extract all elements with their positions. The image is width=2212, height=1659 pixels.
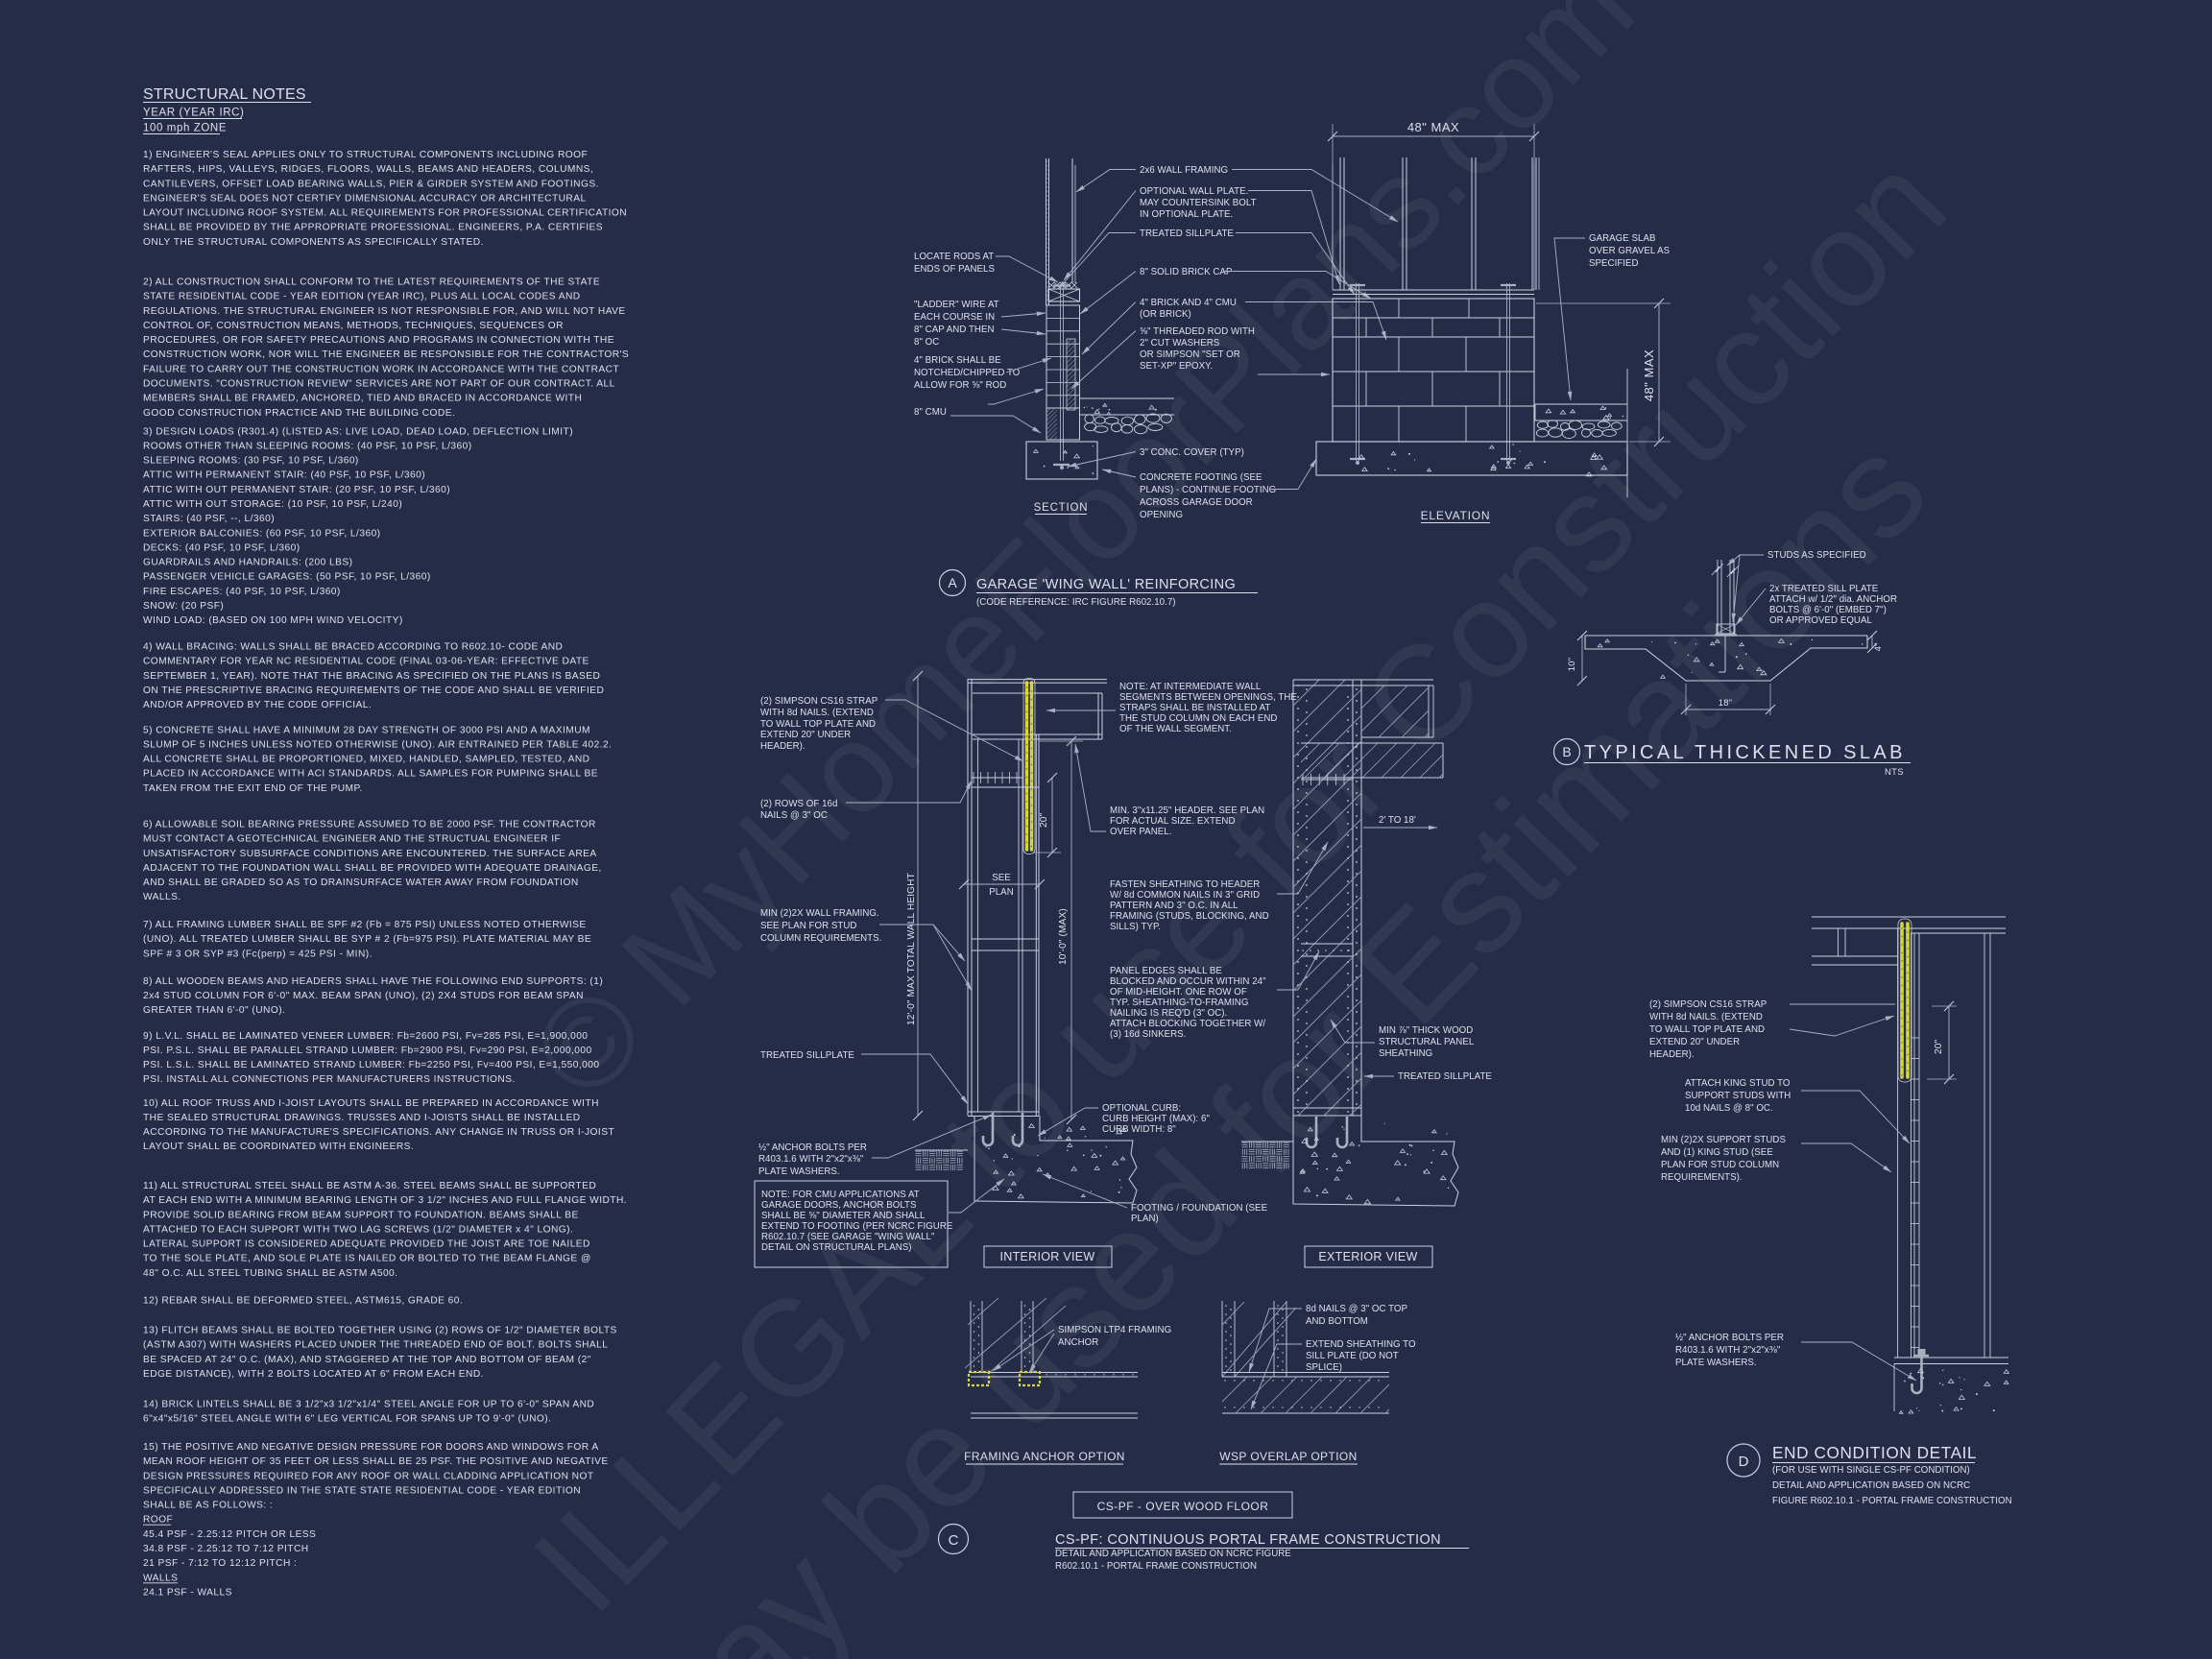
svg-text:STRUCTURAL PANEL: STRUCTURAL PANEL (1379, 1037, 1475, 1047)
svg-text:PASSENGER VEHICLE GARAGES: (50: PASSENGER VEHICLE GARAGES: (50 PSF, 10 P… (143, 572, 431, 583)
svg-text:R602.10.7 (SEE GARAGE "WING WA: R602.10.7 (SEE GARAGE "WING WALL" (761, 1232, 935, 1242)
svg-text:AND (1) KING STUD (SEE: AND (1) KING STUD (SEE (1661, 1147, 1773, 1158)
svg-text:DOCUMENTS. "CONSTRUCTION REVIE: DOCUMENTS. "CONSTRUCTION REVIEW" SERVICE… (143, 379, 615, 390)
svg-text:AND/OR APPROVED BY THE CODE OF: AND/OR APPROVED BY THE CODE OFFICIAL. (143, 700, 372, 710)
svg-text:½" ANCHOR BOLTS PER: ½" ANCHOR BOLTS PER (1675, 1333, 1784, 1343)
svg-text:STAIRS: (40 PSF, --, L/360): STAIRS: (40 PSF, --, L/360) (143, 514, 275, 524)
svg-text:10d NAILS @ 8" OC.: 10d NAILS @ 8" OC. (1685, 1103, 1773, 1114)
svg-text:THE STUD COLUMN ON EACH END: THE STUD COLUMN ON EACH END (1119, 713, 1277, 724)
svg-text:ALLOW FOR ⅝" ROD: ALLOW FOR ⅝" ROD (914, 380, 1006, 391)
svg-text:IN OPTIONAL PLATE.: IN OPTIONAL PLATE. (1140, 209, 1233, 220)
svg-text:48" MAX: 48" MAX (1407, 120, 1459, 134)
svg-text:12'-0" MAX TOTAL WALL HEIGHT: 12'-0" MAX TOTAL WALL HEIGHT (906, 873, 917, 1025)
svg-text:(2) SIMPSON CS16 STRAP: (2) SIMPSON CS16 STRAP (1649, 999, 1767, 1010)
svg-text:SNOW: (20 PSF): SNOW: (20 PSF) (143, 601, 224, 612)
svg-text:STATE RESIDENTIAL CODE - YEAR: STATE RESIDENTIAL CODE - YEAR EDITION (Y… (143, 292, 581, 302)
svg-text:DETAIL AND APPLICATION BASED O: DETAIL AND APPLICATION BASED ON NCRC (1772, 1480, 1970, 1491)
svg-text:NOTE: FOR CMU APPLICATIONS AT: NOTE: FOR CMU APPLICATIONS AT (761, 1190, 920, 1200)
svg-text:48" O.C. ALL STEEL TUBING SHAL: 48" O.C. ALL STEEL TUBING SHALL BE ASTM … (143, 1268, 397, 1279)
svg-text:18": 18" (1719, 698, 1733, 709)
svg-text:LATERAL SUPPORT IS CONSIDERED: LATERAL SUPPORT IS CONSIDERED ADEQUATE P… (143, 1239, 590, 1250)
svg-text:SLUMP OF 5 INCHES UNLESS NOTED: SLUMP OF 5 INCHES UNLESS NOTED OTHERWISE… (143, 739, 612, 750)
svg-text:CURB HEIGHT (MAX): 6": CURB HEIGHT (MAX): 6" (1102, 1114, 1210, 1124)
svg-text:TREATED SILLPLATE: TREATED SILLPLATE (1398, 1071, 1492, 1082)
svg-text:8" CMU: 8" CMU (914, 407, 947, 418)
svg-text:20": 20" (1039, 812, 1049, 828)
svg-text:DECKS: (40 PSF, 10 PSF, L/360): DECKS: (40 PSF, 10 PSF, L/360) (143, 542, 301, 553)
svg-text:DETAIL AND APPLICATION BASED O: DETAIL AND APPLICATION BASED ON NCRC FIG… (1055, 1549, 1291, 1559)
svg-text:GUARDRAILS AND HANDRAILS: (200: GUARDRAILS AND HANDRAILS: (200 LBS) (143, 558, 352, 568)
svg-text:AND BOTTOM: AND BOTTOM (1306, 1316, 1368, 1327)
svg-text:2" CUT WASHERS: 2" CUT WASHERS (1140, 338, 1220, 349)
svg-text:TO WALL TOP PLATE AND: TO WALL TOP PLATE AND (760, 719, 876, 730)
svg-text:SPECIFIED: SPECIFIED (1589, 258, 1639, 269)
svg-text:OPENING: OPENING (1140, 510, 1183, 520)
svg-text:8d NAILS @ 3" OC TOP: 8d NAILS @ 3" OC TOP (1306, 1304, 1407, 1314)
svg-text:WITH 8d NAILS. (EXTEND: WITH 8d NAILS. (EXTEND (760, 708, 874, 718)
svg-text:ROOF: ROOF (143, 1515, 173, 1526)
svg-text:NOTCHED/CHIPPED TO: NOTCHED/CHIPPED TO (914, 368, 1021, 378)
svg-text:R403.1.6 WITH 2"x2"x⅜": R403.1.6 WITH 2"x2"x⅜" (1675, 1345, 1781, 1356)
svg-text:(2) SIMPSON CS16 STRAP: (2) SIMPSON CS16 STRAP (760, 696, 878, 707)
svg-text:ADJACENT TO THE FOUNDATION WAL: ADJACENT TO THE FOUNDATION WALL SHALL BE… (143, 863, 602, 874)
svg-text:15) THE POSITIVE AND NEGATIVE: 15) THE POSITIVE AND NEGATIVE DESIGN PRE… (143, 1442, 599, 1453)
svg-text:OVER GRAVEL AS: OVER GRAVEL AS (1589, 246, 1671, 256)
svg-text:EXTERIOR BALCONIES: (60 PSF, 1: EXTERIOR BALCONIES: (60 PSF, 10 PSF, L/3… (143, 528, 381, 539)
svg-text:24.1 PSF - WALLS: 24.1 PSF - WALLS (143, 1587, 232, 1598)
svg-text:MEMBERS SHALL BE FRAMED, ANCHO: MEMBERS SHALL BE FRAMED, ANCHORED, TIED … (143, 394, 582, 404)
svg-text:(FOR USE WITH SINGLE CS-PF CON: (FOR USE WITH SINGLE CS-PF CONDITION) (1772, 1465, 1970, 1476)
svg-text:SILL PLATE (DO NOT: SILL PLATE (DO NOT (1306, 1351, 1399, 1361)
svg-text:2) ALL CONSTRUCTION SHALL CONF: 2) ALL CONSTRUCTION SHALL CONFORM TO THE… (143, 277, 600, 288)
svg-text:PROCEDURES, OR FOR SAFETY PREC: PROCEDURES, OR FOR SAFETY PRECAUTIONS AN… (143, 335, 614, 346)
svg-text:ONLY THE STRUCTURAL COMPONENTS: ONLY THE STRUCTURAL COMPONENTS AS SPECIF… (143, 237, 484, 248)
svg-text:3) DESIGN LOADS (R301.4) (LIST: 3) DESIGN LOADS (R301.4) (LISTED AS: LIV… (143, 426, 573, 437)
svg-text:20": 20" (1934, 1039, 1944, 1054)
svg-text:GARAGE DOORS, ANCHOR BOLTS: GARAGE DOORS, ANCHOR BOLTS (761, 1200, 917, 1211)
svg-text:FIGURE R602.10.1 - PORTAL FRAM: FIGURE R602.10.1 - PORTAL FRAME CONSTRUC… (1772, 1496, 2012, 1506)
svg-text:SHALL BE PROVIDED BY THE APPRO: SHALL BE PROVIDED BY THE APPROPRIATE PRO… (143, 223, 603, 233)
svg-text:6"x4"x5/16" STEEL ANGLE WITH 6: 6"x4"x5/16" STEEL ANGLE WITH 6" LEG VERT… (143, 1414, 551, 1425)
svg-text:SEGMENTS BETWEEN OPENINGS, THE: SEGMENTS BETWEEN OPENINGS, THE (1119, 692, 1297, 703)
svg-text:"LADDER" WIRE AT: "LADDER" WIRE AT (914, 300, 999, 310)
svg-text:MIN. 3"x11.25" HEADER. SEE PLA: MIN. 3"x11.25" HEADER. SEE PLAN (1110, 805, 1264, 816)
svg-text:BOLTS @ 6'-0" (EMBED 7"): BOLTS @ 6'-0" (EMBED 7") (1769, 605, 1887, 615)
svg-text:STRAPS SHALL BE INSTALLED AT: STRAPS SHALL BE INSTALLED AT (1119, 703, 1270, 713)
svg-text:7) ALL FRAMING LUMBER SHALL BE: 7) ALL FRAMING LUMBER SHALL BE SPF #2 (F… (143, 920, 587, 930)
svg-text:PLAN FOR STUD COLUMN: PLAN FOR STUD COLUMN (1661, 1160, 1779, 1170)
svg-text:CS-PF - OVER WOOD FLOOR: CS-PF - OVER WOOD FLOOR (1097, 1500, 1269, 1513)
svg-text:TO THE SOLE PLATE, AND SOLE PL: TO THE SOLE PLATE, AND SOLE PLATE IS NAI… (143, 1254, 591, 1264)
svg-text:FASTEN SHEATHING TO HEADER: FASTEN SHEATHING TO HEADER (1110, 879, 1260, 890)
svg-text:12) REBAR SHALL BE DEFORMED ST: 12) REBAR SHALL BE DEFORMED STEEL, ASTM6… (143, 1296, 463, 1307)
svg-text:CANTILEVERS, OFFSET LOAD BEARI: CANTILEVERS, OFFSET LOAD BEARING WALLS, … (143, 179, 599, 189)
svg-text:EXTEND 20" UNDER: EXTEND 20" UNDER (1649, 1037, 1740, 1047)
svg-text:HEADER).: HEADER). (1649, 1049, 1695, 1060)
svg-text:8" OC: 8" OC (914, 337, 939, 348)
svg-text:SEPTEMBER 1, YEAR). NOTE THAT: SEPTEMBER 1, YEAR). NOTE THAT THE BRACIN… (143, 671, 600, 682)
svg-text:(UNO). ALL TREATED LUMBER SHAL: (UNO). ALL TREATED LUMBER SHALL BE SYP #… (143, 934, 591, 945)
svg-text:6) ALLOWABLE SOIL BEARING PRES: 6) ALLOWABLE SOIL BEARING PRESSURE ASSUM… (143, 820, 596, 830)
svg-text:SHALL BE ⅝" DIAMETER AND SHALL: SHALL BE ⅝" DIAMETER AND SHALL (761, 1211, 926, 1221)
svg-text:COMMENTARY FOR YEAR NC RESIDEN: COMMENTARY FOR YEAR NC RESIDENTIAL CODE … (143, 657, 589, 667)
svg-text:PLANS) - CONTINUE FOOTING: PLANS) - CONTINUE FOOTING (1140, 485, 1276, 495)
svg-text:21 PSF - 7:12 TO 12:12 PITCH :: 21 PSF - 7:12 TO 12:12 PITCH : (143, 1558, 297, 1569)
svg-text:(3) 16d SINKERS.: (3) 16d SINKERS. (1110, 1029, 1186, 1040)
svg-text:SPF # 3 OR SYP #3 (Fc(perp) =: SPF # 3 OR SYP #3 (Fc(perp) = 425 PSI - … (143, 949, 373, 959)
svg-text:CONTROL OF, CONSTRUCTION MEANS: CONTROL OF, CONSTRUCTION MEANS, METHODS,… (143, 321, 564, 331)
svg-text:SET-XP" EPOXY.: SET-XP" EPOXY. (1140, 361, 1213, 372)
svg-text:SPLICE): SPLICE) (1306, 1362, 1342, 1373)
svg-text:SILLS) TYP.: SILLS) TYP. (1110, 922, 1161, 932)
svg-text:NAILS @ 3" OC: NAILS @ 3" OC (760, 810, 828, 821)
svg-text:A: A (948, 575, 957, 590)
svg-text:TYPICAL THICKENED SLAB: TYPICAL THICKENED SLAB (1584, 742, 1906, 763)
svg-text:REQUIREMENTS).: REQUIREMENTS). (1661, 1172, 1743, 1183)
svg-text:45.4 PSF - 2.25:12 PITCH OR LE: 45.4 PSF - 2.25:12 PITCH OR LESS (143, 1529, 316, 1540)
svg-text:FOR ACTUAL SIZE. EXTEND: FOR ACTUAL SIZE. EXTEND (1110, 816, 1236, 827)
svg-text:2x TREATED SILL PLATE: 2x TREATED SILL PLATE (1769, 584, 1879, 594)
svg-text:OVER PANEL.: OVER PANEL. (1110, 827, 1171, 837)
svg-text:ATTACHED TO EACH SUPPORT WITH: ATTACHED TO EACH SUPPORT WITH TWO LAG SC… (143, 1224, 573, 1235)
svg-text:PLACED IN ACCORDANCE WITH ACI: PLACED IN ACCORDANCE WITH ACI STANDARDS.… (143, 769, 598, 780)
svg-text:WALLS.: WALLS. (143, 892, 181, 902)
svg-text:10) ALL ROOF TRUSS AND I-JOIST: 10) ALL ROOF TRUSS AND I-JOIST LAYOUTS S… (143, 1098, 599, 1109)
svg-text:WSP OVERLAP OPTION: WSP OVERLAP OPTION (1219, 1450, 1357, 1463)
svg-text:OPTIONAL WALL PLATE.: OPTIONAL WALL PLATE. (1140, 186, 1248, 197)
svg-text:48" MAX: 48" MAX (1642, 349, 1656, 401)
svg-text:2x4 STUD COLUMN FOR 6'-0" MAX.: 2x4 STUD COLUMN FOR 6'-0" MAX. BEAM SPAN… (143, 991, 584, 1001)
svg-text:LAYOUT SHALL BE COORDINATED WI: LAYOUT SHALL BE COORDINATED WITH ENGINEE… (143, 1142, 414, 1152)
svg-text:ACROSS GARAGE DOOR: ACROSS GARAGE DOOR (1140, 497, 1253, 508)
svg-text:PSI. INSTALL ALL CONNECTIONS P: PSI. INSTALL ALL CONNECTIONS PER MANUFAC… (143, 1074, 516, 1085)
svg-text:THE SEALED STRUCTURAL DRAWINGS: THE SEALED STRUCTURAL DRAWINGS. TRUSSES … (143, 1113, 581, 1123)
svg-text:NOTE: AT INTERMEDIATE WALL: NOTE: AT INTERMEDIATE WALL (1119, 682, 1262, 692)
svg-text:PLAN): PLAN) (1131, 1214, 1159, 1224)
svg-text:ALL CONCRETE SHALL BE PROPORTI: ALL CONCRETE SHALL BE PROPORTIONED, MIXE… (143, 755, 589, 765)
svg-text:SPECIFICALLY ADDRESSED IN THE: SPECIFICALLY ADDRESSED IN THE STATE STAT… (143, 1485, 581, 1496)
svg-text:MAY COUNTERSINK BOLT: MAY COUNTERSINK BOLT (1140, 198, 1257, 208)
svg-text:GREATER THAN 6'-0" (UNO).: GREATER THAN 6'-0" (UNO). (143, 1005, 285, 1016)
svg-text:FOOTING / FOUNDATION (SEE: FOOTING / FOUNDATION (SEE (1131, 1203, 1268, 1214)
svg-text:R602.10.1 - PORTAL FRAME CONST: R602.10.1 - PORTAL FRAME CONSTRUCTION (1055, 1561, 1257, 1572)
svg-text:W/ 8d COMMON NAILS IN 3" GRID: W/ 8d COMMON NAILS IN 3" GRID (1110, 890, 1260, 901)
svg-text:8) ALL WOODEN BEAMS AND HEADER: 8) ALL WOODEN BEAMS AND HEADERS SHALL HA… (143, 976, 603, 987)
svg-text:NTS: NTS (1885, 767, 1904, 778)
svg-text:8" CAP AND THEN: 8" CAP AND THEN (914, 325, 995, 335)
svg-text:4": 4" (1873, 642, 1884, 651)
svg-text:UNSATISFACTORY SUBSURFACE COND: UNSATISFACTORY SUBSURFACE CONDITIONS ARE… (143, 849, 597, 859)
svg-text:⅝" THREADED ROD WITH: ⅝" THREADED ROD WITH (1140, 326, 1255, 337)
svg-text:9) L.V.L. SHALL BE LAMINATED: 9) L.V.L. SHALL BE LAMINATED VENEER LUMB… (143, 1031, 588, 1042)
svg-text:PATTERN AND 3" O.C. IN ALL: PATTERN AND 3" O.C. IN ALL (1110, 901, 1238, 911)
svg-text:INTERIOR VIEW: INTERIOR VIEW (999, 1250, 1094, 1263)
svg-text:SUPPORT STUDS WITH: SUPPORT STUDS WITH (1685, 1091, 1791, 1101)
svg-text:COLUMN REQUIREMENTS.: COLUMN REQUIREMENTS. (760, 933, 881, 944)
svg-text:2' TO 18': 2' TO 18' (1379, 815, 1416, 826)
svg-text:NAILING IS REQ'D (3" OC).: NAILING IS REQ'D (3" OC). (1110, 1008, 1227, 1019)
svg-text:TO WALL TOP PLATE AND: TO WALL TOP PLATE AND (1649, 1024, 1765, 1035)
svg-text:OR APPROVED EQUAL: OR APPROVED EQUAL (1769, 615, 1872, 626)
svg-text:MUST CONTACT A GEOTECHNICAL EN: MUST CONTACT A GEOTECHNICAL ENGINEER AND… (143, 834, 561, 845)
svg-text:REGULATIONS. THE STRUCTURAL EN: REGULATIONS. THE STRUCTURAL ENGINEER IS … (143, 306, 626, 317)
svg-text:EXTEND 20" UNDER: EXTEND 20" UNDER (760, 730, 851, 740)
svg-text:10": 10" (1567, 658, 1577, 672)
svg-text:PROVIDE SOLID BEARING FROM BEA: PROVIDE SOLID BEARING FROM BEAM SUPPORT … (143, 1210, 579, 1220)
svg-text:YEAR (YEAR IRC): YEAR (YEAR IRC) (143, 108, 245, 119)
svg-text:13) FLITCH BEAMS SHALL BE BOLT: 13) FLITCH BEAMS SHALL BE BOLTED TOGETHE… (143, 1326, 617, 1336)
svg-text:ROOMS OTHER THAN SLEEPING ROOM: ROOMS OTHER THAN SLEEPING ROOMS: (40 PSF… (143, 441, 472, 451)
svg-text:SIMPSON LTP4 FRAMING: SIMPSON LTP4 FRAMING (1058, 1325, 1171, 1335)
svg-text:ATTIC WITH OUT STORAGE: (10 PS: ATTIC WITH OUT STORAGE: (10 PSF, 10 PSF,… (143, 499, 402, 510)
svg-text:ATTACH w/ 1/2" dia. ANCHOR: ATTACH w/ 1/2" dia. ANCHOR (1769, 594, 1897, 605)
svg-text:END CONDITION DETAIL: END CONDITION DETAIL (1772, 1443, 1977, 1462)
svg-text:AND SHALL BE GRADED SO AS TO D: AND SHALL BE GRADED SO AS TO DRAINSURFAC… (143, 878, 579, 888)
svg-text:SECTION: SECTION (1034, 502, 1089, 514)
svg-text:(2) ROWS OF 16d: (2) ROWS OF 16d (760, 799, 837, 809)
svg-text:(CODE REFERENCE: IRC FIGURE R6: (CODE REFERENCE: IRC FIGURE R602.10.7) (976, 597, 1176, 608)
svg-text:4" BRICK SHALL BE: 4" BRICK SHALL BE (914, 355, 1001, 366)
svg-text:(ASTM A307) WITH WASHERS PLACE: (ASTM A307) WITH WASHERS PLACED UNDER TH… (143, 1340, 608, 1351)
svg-text:PLAN: PLAN (989, 887, 1014, 898)
svg-text:10'-0" (MAX): 10'-0" (MAX) (1058, 908, 1069, 965)
svg-text:CONCRETE FOOTING (SEE: CONCRETE FOOTING (SEE (1140, 472, 1262, 483)
svg-text:EXTEND TO FOOTING (PER NCRC FI: EXTEND TO FOOTING (PER NCRC FIGURE (761, 1221, 953, 1232)
svg-text:AT EACH END WITH A MINIMUM BEA: AT EACH END WITH A MINIMUM BEARING LENGT… (143, 1195, 627, 1206)
svg-text:DETAIL ON STRUCTURAL PLANS): DETAIL ON STRUCTURAL PLANS) (761, 1242, 912, 1253)
svg-text:ACCORDING TO THE MANUFACTURE'S: ACCORDING TO THE MANUFACTURE'S SPECIFICA… (143, 1127, 614, 1138)
svg-text:½" ANCHOR BOLTS PER: ½" ANCHOR BOLTS PER (758, 1142, 867, 1153)
svg-text:TYP. SHEATHING-TO-FRAMING: TYP. SHEATHING-TO-FRAMING (1110, 998, 1248, 1008)
svg-text:34.8 PSF - 2.25:12 TO 7:12 PIT: 34.8 PSF - 2.25:12 TO 7:12 PITCH (143, 1544, 309, 1554)
svg-text:3" CONC. COVER (TYP): 3" CONC. COVER (TYP) (1140, 447, 1244, 458)
svg-text:OF THE WALL SEGMENT.: OF THE WALL SEGMENT. (1119, 724, 1232, 734)
svg-text:PLATE WASHERS.: PLATE WASHERS. (758, 1166, 840, 1177)
svg-text:FAILURE TO CARRY OUT THE CONST: FAILURE TO CARRY OUT THE CONSTRUCTION WO… (143, 364, 619, 374)
svg-text:PANEL EDGES SHALL BE: PANEL EDGES SHALL BE (1110, 966, 1222, 976)
svg-text:(OR BRICK): (OR BRICK) (1140, 309, 1191, 320)
svg-text:OPTIONAL CURB:: OPTIONAL CURB: (1102, 1103, 1181, 1114)
svg-text:C: C (949, 1532, 959, 1549)
svg-text:LOCATE RODS AT: LOCATE RODS AT (914, 252, 994, 262)
svg-text:CURB WIDTH: 8": CURB WIDTH: 8" (1102, 1124, 1176, 1135)
svg-text:WALLS: WALLS (143, 1573, 178, 1583)
svg-text:FRAMING ANCHOR OPTION: FRAMING ANCHOR OPTION (964, 1450, 1125, 1463)
svg-text:ANCHOR: ANCHOR (1058, 1337, 1098, 1348)
svg-text:PSI. L.S.L. SHALL BE LAMINATE: PSI. L.S.L. SHALL BE LAMINATED STRAND LU… (143, 1060, 599, 1070)
svg-text:ELEVATION: ELEVATION (1421, 509, 1491, 522)
svg-text:ON THE PRESCRIPTIVE BRACING RE: ON THE PRESCRIPTIVE BRACING REQUIREMENTS… (143, 685, 604, 696)
svg-text:FIRE ESCAPES: (40 PSF, 10 PSF,: FIRE ESCAPES: (40 PSF, 10 PSF, L/360) (143, 587, 341, 597)
svg-text:SHALL BE AS FOLLOWS: :: SHALL BE AS FOLLOWS: : (143, 1501, 273, 1511)
svg-text:EXTEND SHEATHING TO: EXTEND SHEATHING TO (1306, 1339, 1416, 1350)
svg-text:EXTERIOR VIEW: EXTERIOR VIEW (1318, 1250, 1417, 1263)
svg-text:PSI. P.S.L. SHALL BE PARALLEL: PSI. P.S.L. SHALL BE PARALLEL STRAND LUM… (143, 1046, 592, 1056)
svg-text:TREATED SILLPLATE: TREATED SILLPLATE (760, 1050, 854, 1061)
svg-text:EDGE DISTANCE), WITH 2 BOLTS L: EDGE DISTANCE), WITH 2 BOLTS LOCATED AT … (143, 1369, 484, 1380)
svg-text:2x6 WALL FRAMING: 2x6 WALL FRAMING (1140, 165, 1228, 176)
svg-text:8" SOLID BRICK CAP: 8" SOLID BRICK CAP (1140, 267, 1232, 277)
svg-text:ENDS OF PANELS: ENDS OF PANELS (914, 264, 995, 275)
svg-text:ENGINEER'S SEAL DOES NOT CERTI: ENGINEER'S SEAL DOES NOT CERTIFY DIMENSI… (143, 193, 587, 204)
svg-text:ATTIC WITH PERMANENT STAIR: (4: ATTIC WITH PERMANENT STAIR: (40 PSF, 10 … (143, 470, 425, 481)
svg-text:BLOCKED AND OCCUR WITHIN 24": BLOCKED AND OCCUR WITHIN 24" (1110, 976, 1266, 987)
svg-text:WITH 8d NAILS. (EXTEND: WITH 8d NAILS. (EXTEND (1649, 1012, 1763, 1022)
svg-text:GOOD CONSTRUCTION PRACTICE AND: GOOD CONSTRUCTION PRACTICE AND THE BUILD… (143, 408, 455, 419)
svg-text:OF MID-HEIGHT. ONE ROW OF: OF MID-HEIGHT. ONE ROW OF (1110, 987, 1247, 998)
svg-text:MIN ⅞" THICK WOOD: MIN ⅞" THICK WOOD (1379, 1025, 1473, 1036)
svg-text:CONSTRUCTION WORK, NOR WILL TH: CONSTRUCTION WORK, NOR WILL THE ENGINEER… (143, 349, 629, 360)
svg-text:MIN (2)2X WALL FRAMING.: MIN (2)2X WALL FRAMING. (760, 908, 879, 919)
svg-text:SHEATHING: SHEATHING (1379, 1048, 1432, 1059)
svg-text:ATTIC WITH OUT PERMANENT STAIR: ATTIC WITH OUT PERMANENT STAIR: (20 PSF,… (143, 485, 450, 495)
svg-text:1) ENGINEER'S SEAL APPLIES ONL: 1) ENGINEER'S SEAL APPLIES ONLY TO STRUC… (143, 150, 588, 160)
svg-text:HEADER).: HEADER). (760, 741, 805, 752)
svg-text:STUDS AS SPECIFIED: STUDS AS SPECIFIED (1767, 550, 1866, 561)
svg-text:SEE PLAN FOR STUD: SEE PLAN FOR STUD (760, 921, 856, 931)
svg-text:WIND LOAD: (BASED ON 100 MPH W: WIND LOAD: (BASED ON 100 MPH WIND VELOCI… (143, 615, 403, 626)
svg-text:STRUCTURAL NOTES: STRUCTURAL NOTES (143, 86, 306, 103)
svg-text:100 mph ZONE: 100 mph ZONE (143, 123, 227, 134)
svg-text:B: B (1562, 744, 1571, 759)
svg-text:GARAGE 'WING WALL' REINFORCING: GARAGE 'WING WALL' REINFORCING (976, 577, 1236, 592)
svg-text:11) ALL STRUCTURAL STEEL SHALL: 11) ALL STRUCTURAL STEEL SHALL BE ASTM A… (143, 1181, 596, 1191)
svg-text:SEE: SEE (992, 873, 1011, 883)
svg-text:DESIGN PRESSURES REQUIRED FOR: DESIGN PRESSURES REQUIRED FOR ANY ROOF O… (143, 1471, 594, 1481)
svg-text:4" BRICK AND 4" CMU: 4" BRICK AND 4" CMU (1140, 298, 1237, 308)
svg-text:MEAN ROOF HEIGHT OF 35 FEET OR: MEAN ROOF HEIGHT OF 35 FEET OR LESS SHAL… (143, 1456, 609, 1467)
svg-text:LAYOUT INCLUDING ROOF SYSTEM.: LAYOUT INCLUDING ROOF SYSTEM. ALL REQUIR… (143, 208, 627, 219)
svg-text:4) WALL BRACING: WALLS SHALL B: 4) WALL BRACING: WALLS SHALL BE BRACED A… (143, 642, 563, 653)
svg-text:14) BRICK LINTELS SHALL BE 3 1: 14) BRICK LINTELS SHALL BE 3 1/2"x3 1/2"… (143, 1400, 594, 1410)
svg-text:BE SPACED AT 24" O.C. (MAX), A: BE SPACED AT 24" O.C. (MAX), AND STAGGER… (143, 1355, 591, 1365)
svg-text:GARAGE SLAB: GARAGE SLAB (1589, 233, 1655, 244)
svg-text:D: D (1739, 1454, 1749, 1470)
svg-text:TAKEN FROM THE EXIT END OF THE: TAKEN FROM THE EXIT END OF THE PUMP. (143, 783, 363, 794)
svg-text:MIN (2)2X SUPPORT STUDS: MIN (2)2X SUPPORT STUDS (1661, 1135, 1786, 1145)
svg-text:RAFTERS, HIPS, VALLEYS, RIDGES: RAFTERS, HIPS, VALLEYS, RIDGES, FLOORS, … (143, 164, 593, 175)
svg-text:ATTACH BLOCKING TOGETHER W/: ATTACH BLOCKING TOGETHER W/ (1110, 1019, 1265, 1029)
svg-text:TREATED SILLPLATE: TREATED SILLPLATE (1140, 228, 1234, 239)
svg-text:EACH COURSE IN: EACH COURSE IN (914, 312, 995, 323)
svg-text:5) CONCRETE SHALL HAVE A MINIM: 5) CONCRETE SHALL HAVE A MINIMUM 28 DAY … (143, 725, 590, 735)
svg-text:CS-PF: CONTINUOUS PORTAL FRAME: CS-PF: CONTINUOUS PORTAL FRAME CONSTRUCT… (1055, 1532, 1441, 1548)
svg-text:OR SIMPSON "SET OR: OR SIMPSON "SET OR (1140, 349, 1240, 360)
svg-text:FRAMING (STUDS, BLOCKING, AND: FRAMING (STUDS, BLOCKING, AND (1110, 911, 1269, 922)
svg-text:ATTACH KING STUD TO: ATTACH KING STUD TO (1685, 1078, 1791, 1089)
svg-text:SLEEPING ROOMS: (30 PSF, 10 PS: SLEEPING ROOMS: (30 PSF, 10 PSF, L/360) (143, 456, 359, 467)
svg-text:R403.1.6 WITH 2"x2"x⅜": R403.1.6 WITH 2"x2"x⅜" (758, 1154, 864, 1165)
svg-text:PLATE WASHERS.: PLATE WASHERS. (1675, 1358, 1757, 1368)
